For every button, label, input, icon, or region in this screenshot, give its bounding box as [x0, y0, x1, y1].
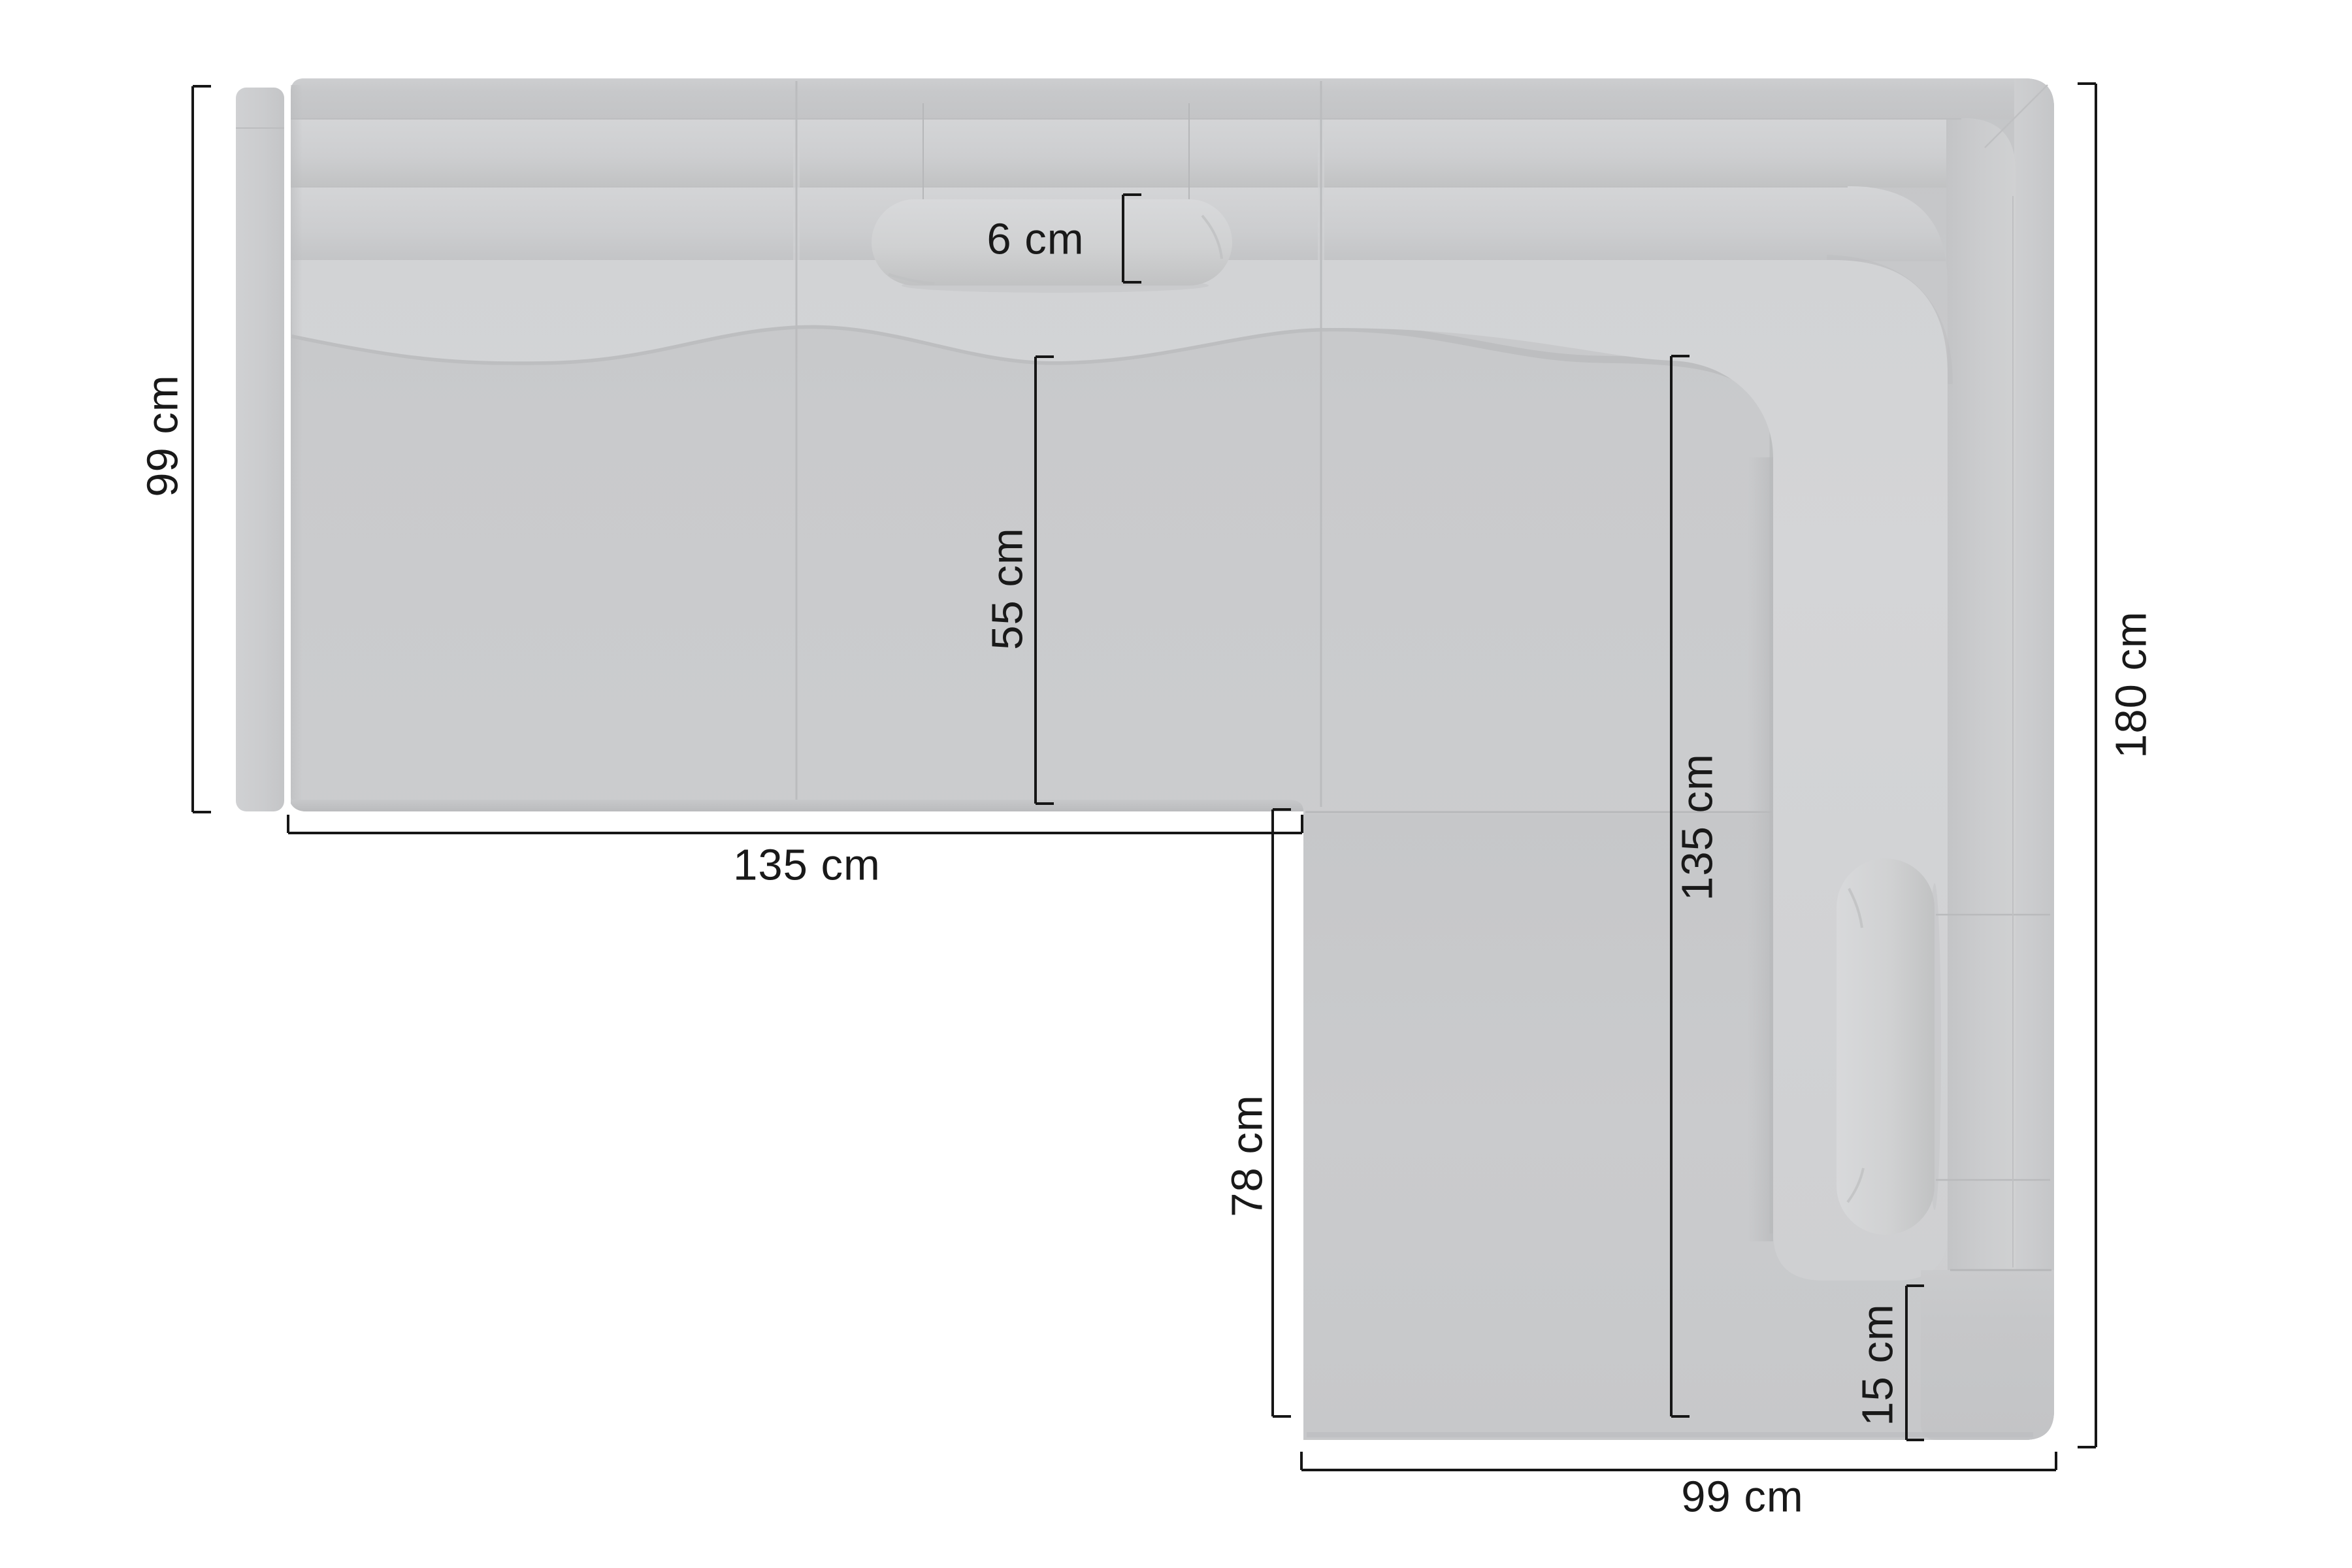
svg-text:15 cm: 15 cm [1854, 1303, 1903, 1426]
svg-text:135 cm: 135 cm [733, 841, 881, 890]
svg-text:6 cm: 6 cm [987, 215, 1084, 264]
svg-text:55 cm: 55 cm [983, 527, 1032, 649]
svg-text:78 cm: 78 cm [1223, 1094, 1272, 1217]
svg-text:99 cm: 99 cm [1681, 1473, 1803, 1522]
svg-text:135 cm: 135 cm [1673, 753, 1722, 901]
svg-text:99 cm: 99 cm [139, 374, 188, 497]
svg-text:180 cm: 180 cm [2107, 611, 2156, 759]
